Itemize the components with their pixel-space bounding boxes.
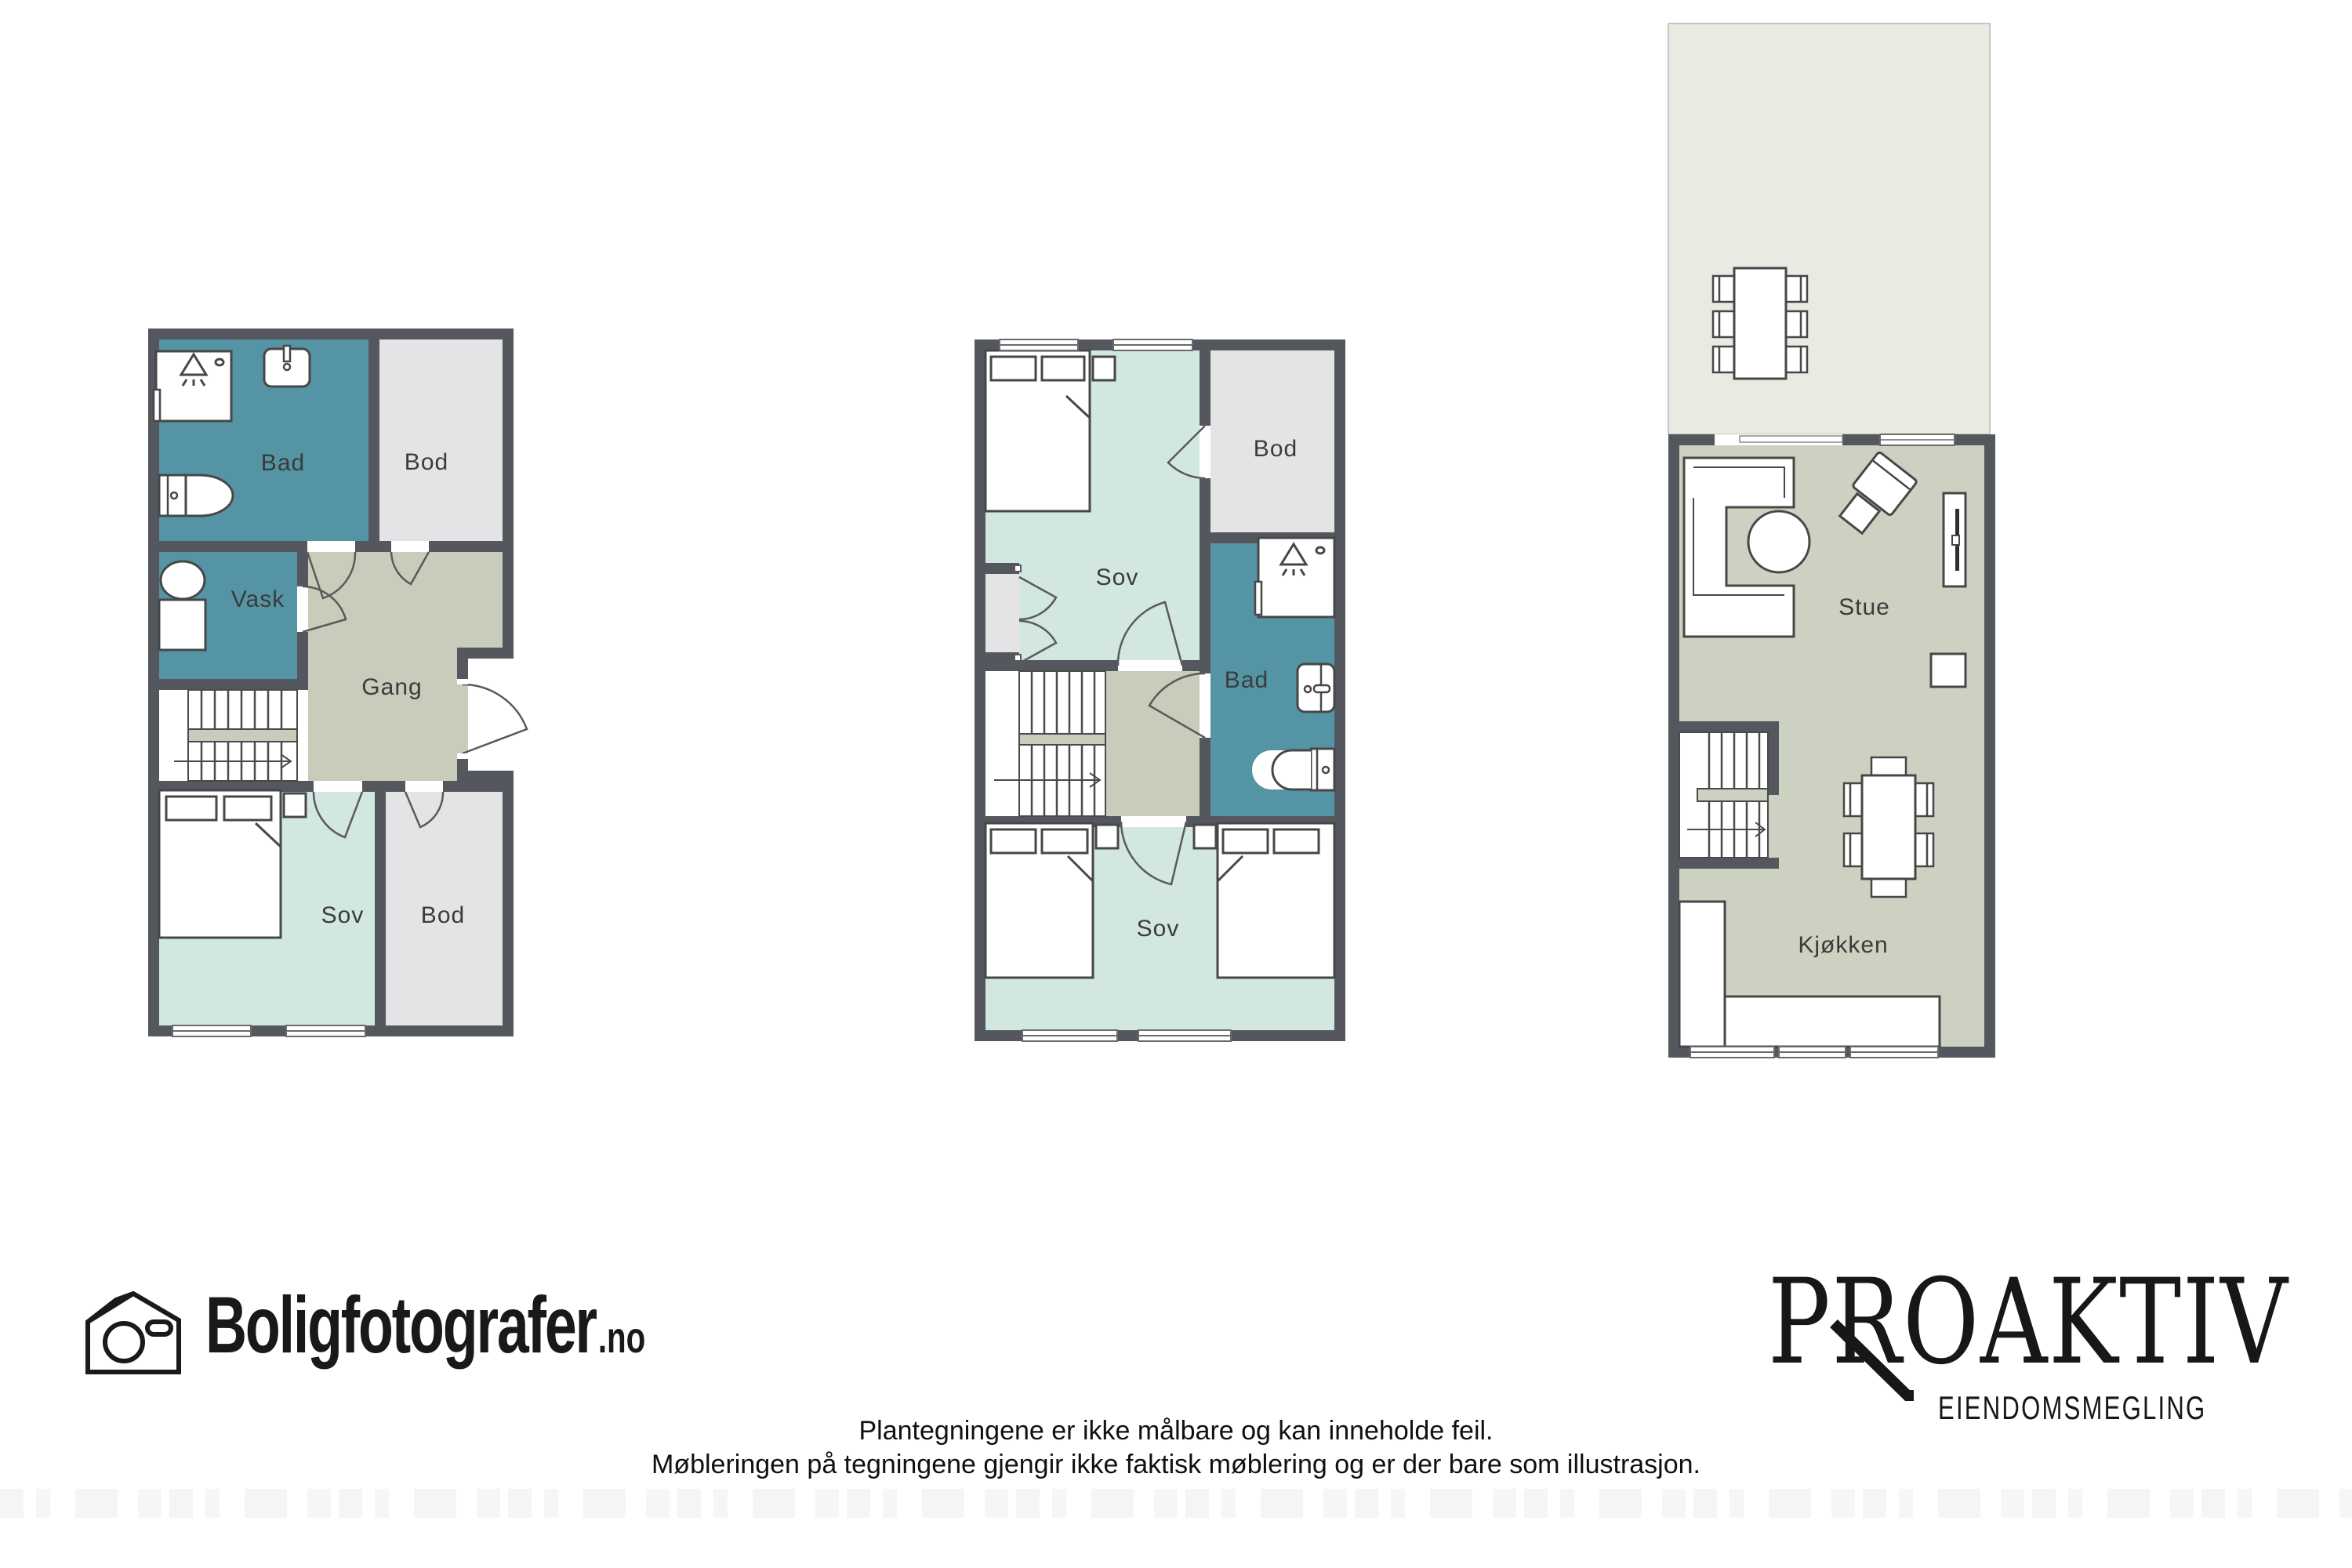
floorplan-underetasje-drawing xyxy=(118,318,564,1054)
room-label-kjokken: Kjøkken xyxy=(1798,932,1888,959)
nightstand xyxy=(284,793,306,817)
coffee-table xyxy=(1748,511,1809,572)
boligfotografer-logo: Boligfotografer.no xyxy=(83,1290,817,1375)
shower-icon xyxy=(154,351,231,421)
room-label-sov-2: Sov xyxy=(1137,916,1180,942)
house-camera-icon xyxy=(83,1290,183,1375)
room-label-bod: Bod xyxy=(405,449,448,476)
floorplan-hovedetasje: Stue Kjøkken xyxy=(1646,16,2038,1098)
staircase xyxy=(1679,732,1768,858)
sink-icon xyxy=(1298,664,1334,712)
boligfotografer-name: Boligfotografer xyxy=(205,1279,596,1371)
proaktiv-name: PROAKTIV xyxy=(1768,1264,2263,1381)
shower-icon xyxy=(1255,538,1334,617)
room-label-stue: Stue xyxy=(1838,594,1890,621)
disclaimer-line-1: Plantegningene er ikke målbare og kan in… xyxy=(0,1414,2352,1448)
room-label-bod: Bod xyxy=(1254,436,1298,463)
floorplan-etasje-drawing xyxy=(949,318,1396,1062)
terrace-dining-set xyxy=(1713,268,1807,379)
sink-icon xyxy=(264,346,310,387)
photo-filmstrip xyxy=(0,1489,2352,1518)
room-label-bod-2: Bod xyxy=(421,902,465,929)
room-label-sov: Sov xyxy=(1096,564,1139,591)
nightstand xyxy=(1093,357,1115,380)
nightstand xyxy=(1194,825,1216,848)
room-label-gang: Gang xyxy=(361,674,422,701)
toilet-icon xyxy=(159,475,233,516)
room-label-vask: Vask xyxy=(231,586,285,613)
tv-bench xyxy=(1944,493,1965,586)
nightstand xyxy=(1096,825,1118,848)
terrace-opening xyxy=(1715,434,1955,445)
disclaimer: Plantegningene er ikke målbare og kan in… xyxy=(0,1414,2352,1482)
windows xyxy=(1690,1047,1938,1058)
side-table xyxy=(1931,654,1965,687)
room-label-bad: Bad xyxy=(1225,667,1269,694)
floorplan-sheet: Bad Bod Vask Gang Sov Bod xyxy=(0,0,2352,1568)
disclaimer-line-2: Møbleringen på tegningene gjengir ikke f… xyxy=(0,1448,2352,1482)
laundry-sink-and-washer xyxy=(159,561,205,650)
boligfotografer-tld: .no xyxy=(598,1312,645,1363)
floorplan-underetasje: Bad Bod Vask Gang Sov Bod xyxy=(118,318,564,1054)
room-label-bad: Bad xyxy=(261,450,305,477)
toilet-icon xyxy=(1252,749,1334,790)
boligfotografer-wordmark: Boligfotografer.no xyxy=(205,1279,645,1371)
proaktiv-logo: PROAKTIV EIENDOMSMEGLING xyxy=(1768,1264,2352,1381)
room-label-sov: Sov xyxy=(321,902,365,929)
floorplan-etasje: Sov Bod Bad Sov xyxy=(949,318,1396,1062)
